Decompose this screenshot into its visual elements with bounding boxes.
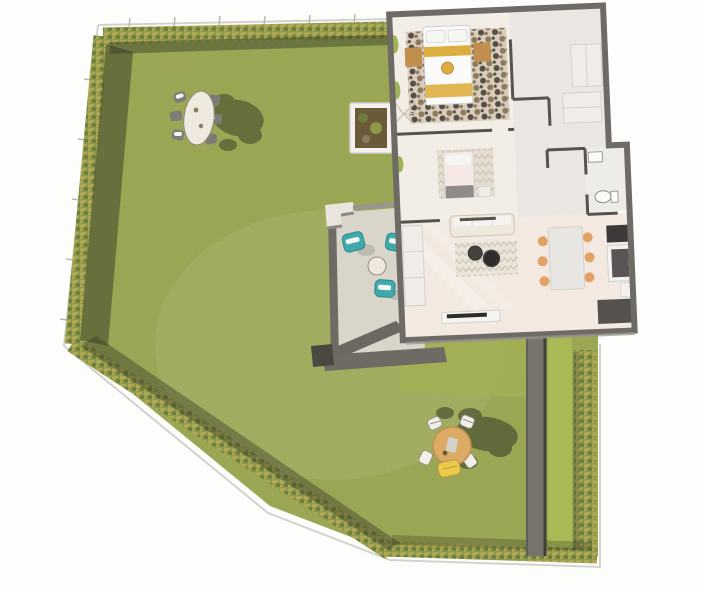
single-bed (443, 151, 475, 198)
tv-unit (442, 310, 500, 323)
nightstand-right (473, 42, 491, 62)
terrace-side-table (368, 257, 386, 275)
hall-lower-floor (515, 148, 588, 217)
pillow (448, 29, 467, 42)
sofa (450, 213, 515, 237)
terrace-wall-corner (311, 344, 334, 367)
yellow-throw (425, 83, 473, 98)
table-decor (199, 124, 203, 128)
terrace-wall-left (332, 214, 335, 360)
floorplan-render (0, 0, 702, 591)
scene-canvas (0, 0, 702, 591)
washbasin (588, 152, 602, 163)
double-bed (423, 25, 473, 105)
oven-glass (611, 249, 629, 278)
pillow (426, 30, 445, 43)
table-decor (194, 108, 199, 113)
pillow (446, 154, 470, 165)
coffee-table (483, 250, 500, 267)
hedge-top (103, 30, 390, 36)
planter-box (350, 103, 392, 153)
dining-table (548, 227, 585, 290)
round-cushion (441, 62, 453, 74)
house (389, 5, 637, 344)
master-bedroom (390, 24, 510, 125)
nightstand (478, 186, 490, 196)
walkway-wall (526, 333, 546, 556)
coffee-table (468, 246, 483, 261)
toilet (595, 190, 611, 203)
table-cup (443, 451, 448, 456)
cupboard (402, 225, 425, 306)
yellow-runner (424, 45, 471, 57)
toilet-tank (611, 191, 618, 202)
gray-blanket (445, 185, 473, 198)
nightstand-left (405, 47, 423, 67)
grass-strip-right (548, 333, 572, 552)
